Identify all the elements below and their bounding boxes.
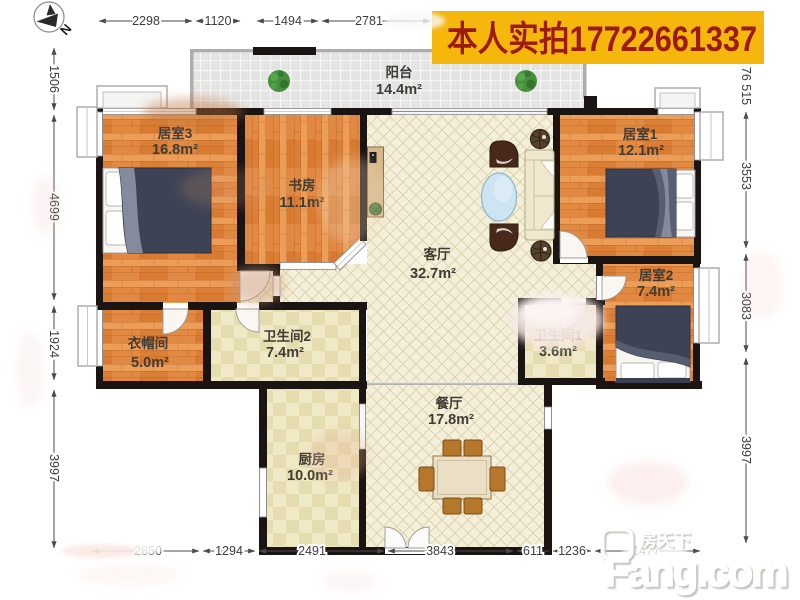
svg-text:客厅: 客厅 (423, 246, 451, 262)
svg-text:17.8m²: 17.8m² (428, 412, 474, 428)
svg-text:2491: 2491 (298, 544, 326, 558)
svg-text:卫生间2: 卫生间2 (263, 328, 311, 344)
svg-text:7.4m²: 7.4m² (266, 345, 304, 361)
svg-text:阳台: 阳台 (386, 64, 413, 80)
svg-text:1494: 1494 (274, 14, 302, 28)
svg-text:3997: 3997 (739, 436, 753, 464)
svg-text:衣帽间: 衣帽间 (128, 335, 169, 351)
svg-text:12.1m²: 12.1m² (618, 143, 664, 159)
svg-text:76 515: 76 515 (739, 67, 753, 105)
svg-text:611: 611 (523, 544, 543, 558)
svg-text:餐厅: 餐厅 (435, 395, 463, 411)
svg-text:3553: 3553 (739, 162, 753, 190)
svg-text:11.1m²: 11.1m² (279, 195, 324, 211)
svg-text:3843: 3843 (426, 544, 454, 558)
svg-text:书房: 书房 (289, 177, 316, 193)
svg-text:5.0m²: 5.0m² (131, 355, 169, 371)
svg-text:7.4m²: 7.4m² (637, 284, 675, 300)
svg-text:本人实拍17722661337: 本人实拍17722661337 (447, 20, 757, 59)
svg-text:1236: 1236 (558, 544, 586, 558)
svg-text:1506: 1506 (47, 65, 61, 93)
svg-text:1924: 1924 (47, 330, 61, 358)
svg-text:居室1: 居室1 (623, 126, 658, 142)
svg-text:14.4m²: 14.4m² (376, 82, 422, 98)
svg-text:房天下: 房天下 (640, 530, 691, 550)
svg-text:1294: 1294 (215, 544, 243, 558)
svg-text:居室2: 居室2 (639, 267, 674, 283)
svg-text:32.7m²: 32.7m² (410, 266, 456, 282)
svg-text:居室3: 居室3 (158, 125, 193, 141)
svg-text:2781: 2781 (355, 14, 383, 28)
svg-text:Fang.com: Fang.com (604, 548, 786, 595)
svg-text:2298: 2298 (132, 14, 160, 28)
svg-text:3997: 3997 (47, 454, 61, 482)
svg-text:16.8m²: 16.8m² (152, 142, 198, 158)
svg-text:1120: 1120 (205, 14, 232, 28)
